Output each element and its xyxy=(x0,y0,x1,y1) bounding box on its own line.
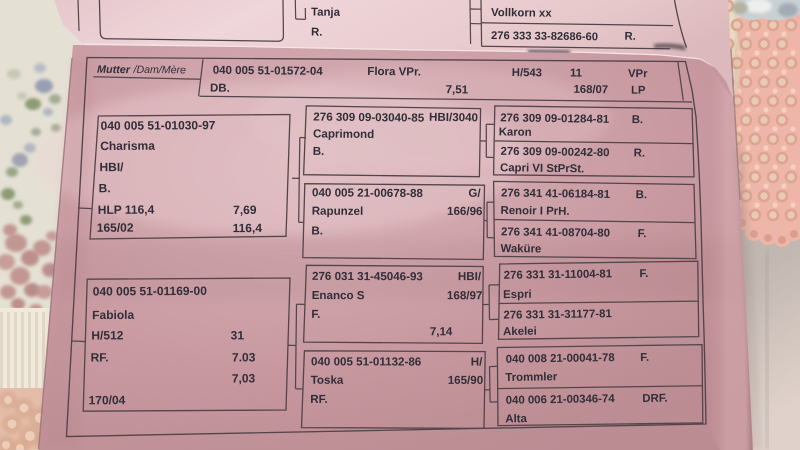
svg-text:Karon: Karon xyxy=(499,126,532,138)
svg-text:168/07: 168/07 xyxy=(573,84,608,96)
svg-text:168/97: 168/97 xyxy=(447,289,483,302)
svg-text:LP: LP xyxy=(631,85,646,97)
svg-text:DB.: DB. xyxy=(210,83,230,95)
svg-text:276 341 41-06184-81: 276 341 41-06184-81 xyxy=(501,187,611,201)
svg-text:G/: G/ xyxy=(468,187,481,200)
svg-text:HBI/: HBI/ xyxy=(99,160,124,174)
svg-text:Tanja: Tanja xyxy=(311,7,341,19)
svg-text:040 008 21-00041-78: 040 008 21-00041-78 xyxy=(506,352,615,366)
svg-text:276 031 31-45046-93: 276 031 31-45046-93 xyxy=(312,270,423,283)
svg-text:Vollkorn xx: Vollkorn xx xyxy=(491,7,552,20)
svg-text:HBI/: HBI/ xyxy=(458,270,482,283)
svg-text:7.03: 7.03 xyxy=(232,350,256,364)
svg-text:Espri: Espri xyxy=(503,289,532,301)
svg-text:166/96: 166/96 xyxy=(447,205,483,218)
svg-text:Waküre: Waküre xyxy=(500,243,541,255)
svg-text:276 309 09-01284-81: 276 309 09-01284-81 xyxy=(500,112,610,126)
svg-text:7,51: 7,51 xyxy=(446,84,469,96)
svg-text:Renoir I PrH.: Renoir I PrH. xyxy=(500,205,569,218)
svg-text:165/90: 165/90 xyxy=(448,374,483,387)
svg-text:H/512: H/512 xyxy=(91,328,123,342)
svg-text:RF.: RF. xyxy=(91,350,109,364)
svg-text:Alta: Alta xyxy=(505,413,527,425)
svg-text:7,69: 7,69 xyxy=(233,203,257,217)
svg-text:Fabiola: Fabiola xyxy=(92,308,134,322)
svg-text:/Dam/Mère: /Dam/Mère xyxy=(132,64,186,77)
svg-text:7,14: 7,14 xyxy=(430,325,453,338)
svg-text:31: 31 xyxy=(231,328,245,342)
svg-text:HBI/3040: HBI/3040 xyxy=(429,111,478,125)
svg-text:R.: R. xyxy=(624,31,635,43)
svg-text:040 005 51-01572-04: 040 005 51-01572-04 xyxy=(213,65,324,78)
svg-text:B.: B. xyxy=(632,114,644,126)
svg-text:11: 11 xyxy=(570,67,582,79)
svg-text:VPr: VPr xyxy=(628,68,648,80)
svg-text:R.: R. xyxy=(634,147,646,159)
svg-text:040 005 51-01169-00: 040 005 51-01169-00 xyxy=(93,284,208,299)
svg-text:F.: F. xyxy=(638,228,647,240)
svg-text:HLP 116,4: HLP 116,4 xyxy=(98,203,155,217)
svg-text:Capri VI StPrSt.: Capri VI StPrSt. xyxy=(500,162,584,175)
svg-text:116,4: 116,4 xyxy=(233,221,263,235)
svg-text:Charisma: Charisma xyxy=(100,139,155,153)
svg-text:Trommler: Trommler xyxy=(505,371,558,384)
svg-text:276 333 33-82686-60: 276 333 33-82686-60 xyxy=(491,30,598,43)
svg-text:H/: H/ xyxy=(471,355,483,368)
svg-text:7,03: 7,03 xyxy=(232,371,256,385)
svg-text:170/04: 170/04 xyxy=(89,393,126,407)
svg-text:040 005 51-01030-97: 040 005 51-01030-97 xyxy=(101,118,216,133)
svg-text:040 006 21-00346-74: 040 006 21-00346-74 xyxy=(506,393,616,407)
svg-text:Mutter: Mutter xyxy=(97,64,131,76)
svg-text:Caprimond: Caprimond xyxy=(313,127,374,141)
svg-text:F.: F. xyxy=(639,268,648,280)
svg-text:H/543: H/543 xyxy=(512,67,542,79)
svg-text:B.: B. xyxy=(311,225,323,238)
svg-text:Rapunzel: Rapunzel xyxy=(312,205,364,218)
svg-text:276 341 41-08704-80: 276 341 41-08704-80 xyxy=(501,226,610,239)
svg-text:Akelei: Akelei xyxy=(503,326,537,338)
svg-text:B.: B. xyxy=(313,145,325,158)
svg-text:R.: R. xyxy=(311,27,323,39)
svg-text:276 331 31-31177-81: 276 331 31-31177-81 xyxy=(503,308,612,322)
svg-text:Toska: Toska xyxy=(311,374,344,387)
svg-text:B.: B. xyxy=(99,181,111,195)
svg-text:Enanco S: Enanco S xyxy=(312,289,365,302)
svg-text:DRF.: DRF. xyxy=(642,393,667,405)
svg-text:F.: F. xyxy=(311,308,320,321)
svg-text:040 005 21-00678-88: 040 005 21-00678-88 xyxy=(312,186,424,200)
svg-text:B.: B. xyxy=(636,189,648,201)
svg-text:040 005 51-01132-86: 040 005 51-01132-86 xyxy=(311,355,422,368)
svg-text:F.: F. xyxy=(640,352,649,364)
svg-text:RF.: RF. xyxy=(310,393,327,406)
svg-text:276 309 09-03040-85: 276 309 09-03040-85 xyxy=(313,111,425,125)
svg-text:276 309 09-00242-80: 276 309 09-00242-80 xyxy=(500,146,609,160)
svg-text:276 331 31-11004-81: 276 331 31-11004-81 xyxy=(504,268,613,282)
svg-text:Flora VPr.: Flora VPr. xyxy=(367,66,421,79)
svg-text:165/02: 165/02 xyxy=(97,221,134,235)
